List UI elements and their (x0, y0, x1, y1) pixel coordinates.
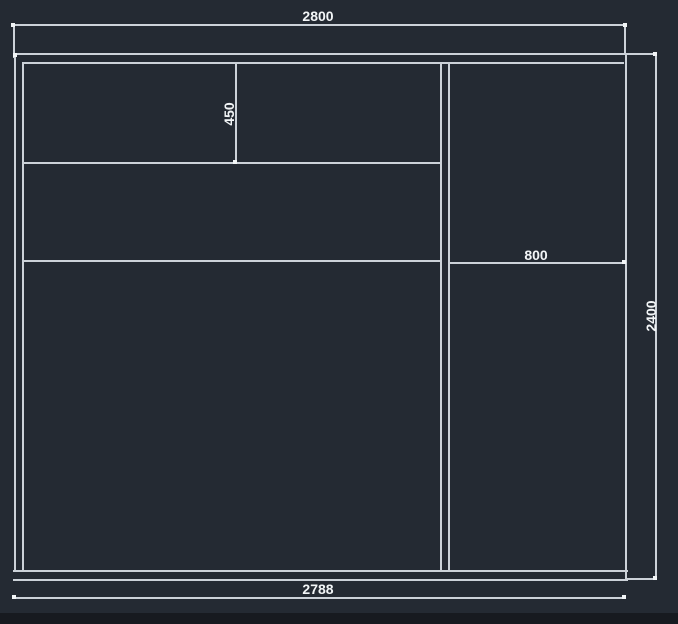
dim-tick-bottom-left (12, 595, 16, 599)
right-side-line[interactable] (625, 53, 627, 581)
dim-label-right-height[interactable]: 2400 (644, 300, 658, 331)
dim-top-line[interactable] (13, 24, 626, 26)
left-shelf-lower-line[interactable] (23, 260, 441, 262)
dim-tick-right-bottom (653, 576, 657, 580)
dim-bottom-line[interactable] (14, 597, 626, 599)
shelf-tick-right-end (622, 260, 626, 264)
dim-label-bottom-width[interactable]: 2788 (302, 582, 333, 596)
dim-top-ext-right-line[interactable] (624, 24, 626, 55)
cubby-tick-bottom (233, 160, 237, 164)
dim-tick-top-right (623, 23, 627, 27)
center-divider-right-line[interactable] (448, 62, 450, 572)
dim-label-top-width[interactable]: 2800 (302, 9, 333, 23)
left-shelf-upper-line[interactable] (23, 162, 441, 164)
corner-tick-top-left (13, 53, 17, 57)
bottom-panel-upper-line[interactable] (13, 570, 628, 572)
left-side-inner-line[interactable] (22, 62, 24, 572)
dim-tick-top-left (11, 23, 15, 27)
top-panel-outer-line[interactable] (13, 53, 627, 55)
cad-drawing-canvas[interactable]: 280045080024002788 (0, 0, 678, 624)
left-side-outer-line[interactable] (14, 53, 16, 572)
top-panel-inner-line[interactable] (22, 62, 624, 64)
center-divider-left-line[interactable] (440, 62, 442, 572)
dim-label-upper-cubby-height[interactable]: 450 (222, 102, 236, 125)
dim-tick-bottom-right (622, 595, 626, 599)
canvas-bottom-edge-bar (0, 613, 678, 624)
dim-label-right-section-width[interactable]: 800 (524, 248, 547, 262)
dim-tick-right-top (653, 52, 657, 56)
